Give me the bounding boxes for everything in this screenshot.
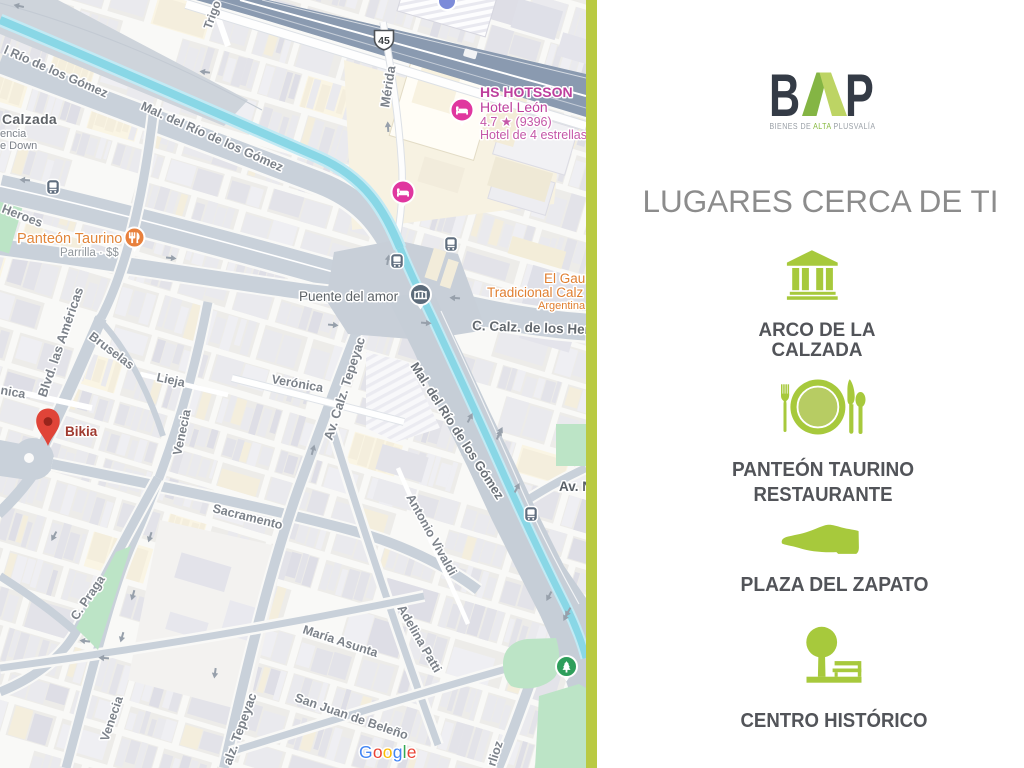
svg-text:Tradicional Calz: Tradicional Calz xyxy=(487,285,584,300)
svg-text:P: P xyxy=(845,63,874,130)
svg-text:CALZADA: CALZADA xyxy=(772,340,863,361)
svg-text:Calzada: Calzada xyxy=(2,111,57,127)
svg-text:Hotel León: Hotel León xyxy=(480,99,548,115)
svg-text:ARCO DE LA: ARCO DE LA xyxy=(759,320,876,341)
svg-text:CENTRO HISTÓRICO: CENTRO HISTÓRICO xyxy=(741,708,928,732)
svg-text:Bikia: Bikia xyxy=(65,424,98,439)
svg-text:Parrilla · $$: Parrilla · $$ xyxy=(60,247,119,259)
svg-text:RESTAURANTE: RESTAURANTE xyxy=(754,484,893,506)
svg-text:HS HOTSSON: HS HOTSSON xyxy=(480,84,573,100)
svg-text:Panteón Taurino: Panteón Taurino xyxy=(17,231,122,247)
svg-text:encia: encia xyxy=(0,128,27,140)
svg-text:Argentina: Argentina xyxy=(538,300,586,312)
svg-text:Av. N: Av. N xyxy=(559,479,586,494)
svg-text:BIENES DE ALTA PLUSVALÍA: BIENES DE ALTA PLUSVALÍA xyxy=(770,122,876,131)
svg-text:45: 45 xyxy=(378,35,390,47)
svg-text:PLAZA DEL ZAPATO: PLAZA DEL ZAPATO xyxy=(741,574,929,596)
svg-text:PANTEÓN TAURINO: PANTEÓN TAURINO xyxy=(732,457,914,481)
svg-text:Hotel de 4 estrellas: Hotel de 4 estrellas xyxy=(480,128,586,142)
svg-text:LUGARES CERCA DE TI: LUGARES CERCA DE TI xyxy=(643,183,999,219)
svg-text:e Down: e Down xyxy=(0,140,37,152)
svg-text:Puente del amor: Puente del amor xyxy=(299,289,399,304)
svg-text:El Gau: El Gau xyxy=(544,271,585,286)
svg-text:Google: Google xyxy=(359,742,417,762)
svg-text:4.7 ★ (9396): 4.7 ★ (9396) xyxy=(480,115,552,129)
svg-text:B: B xyxy=(769,63,800,130)
